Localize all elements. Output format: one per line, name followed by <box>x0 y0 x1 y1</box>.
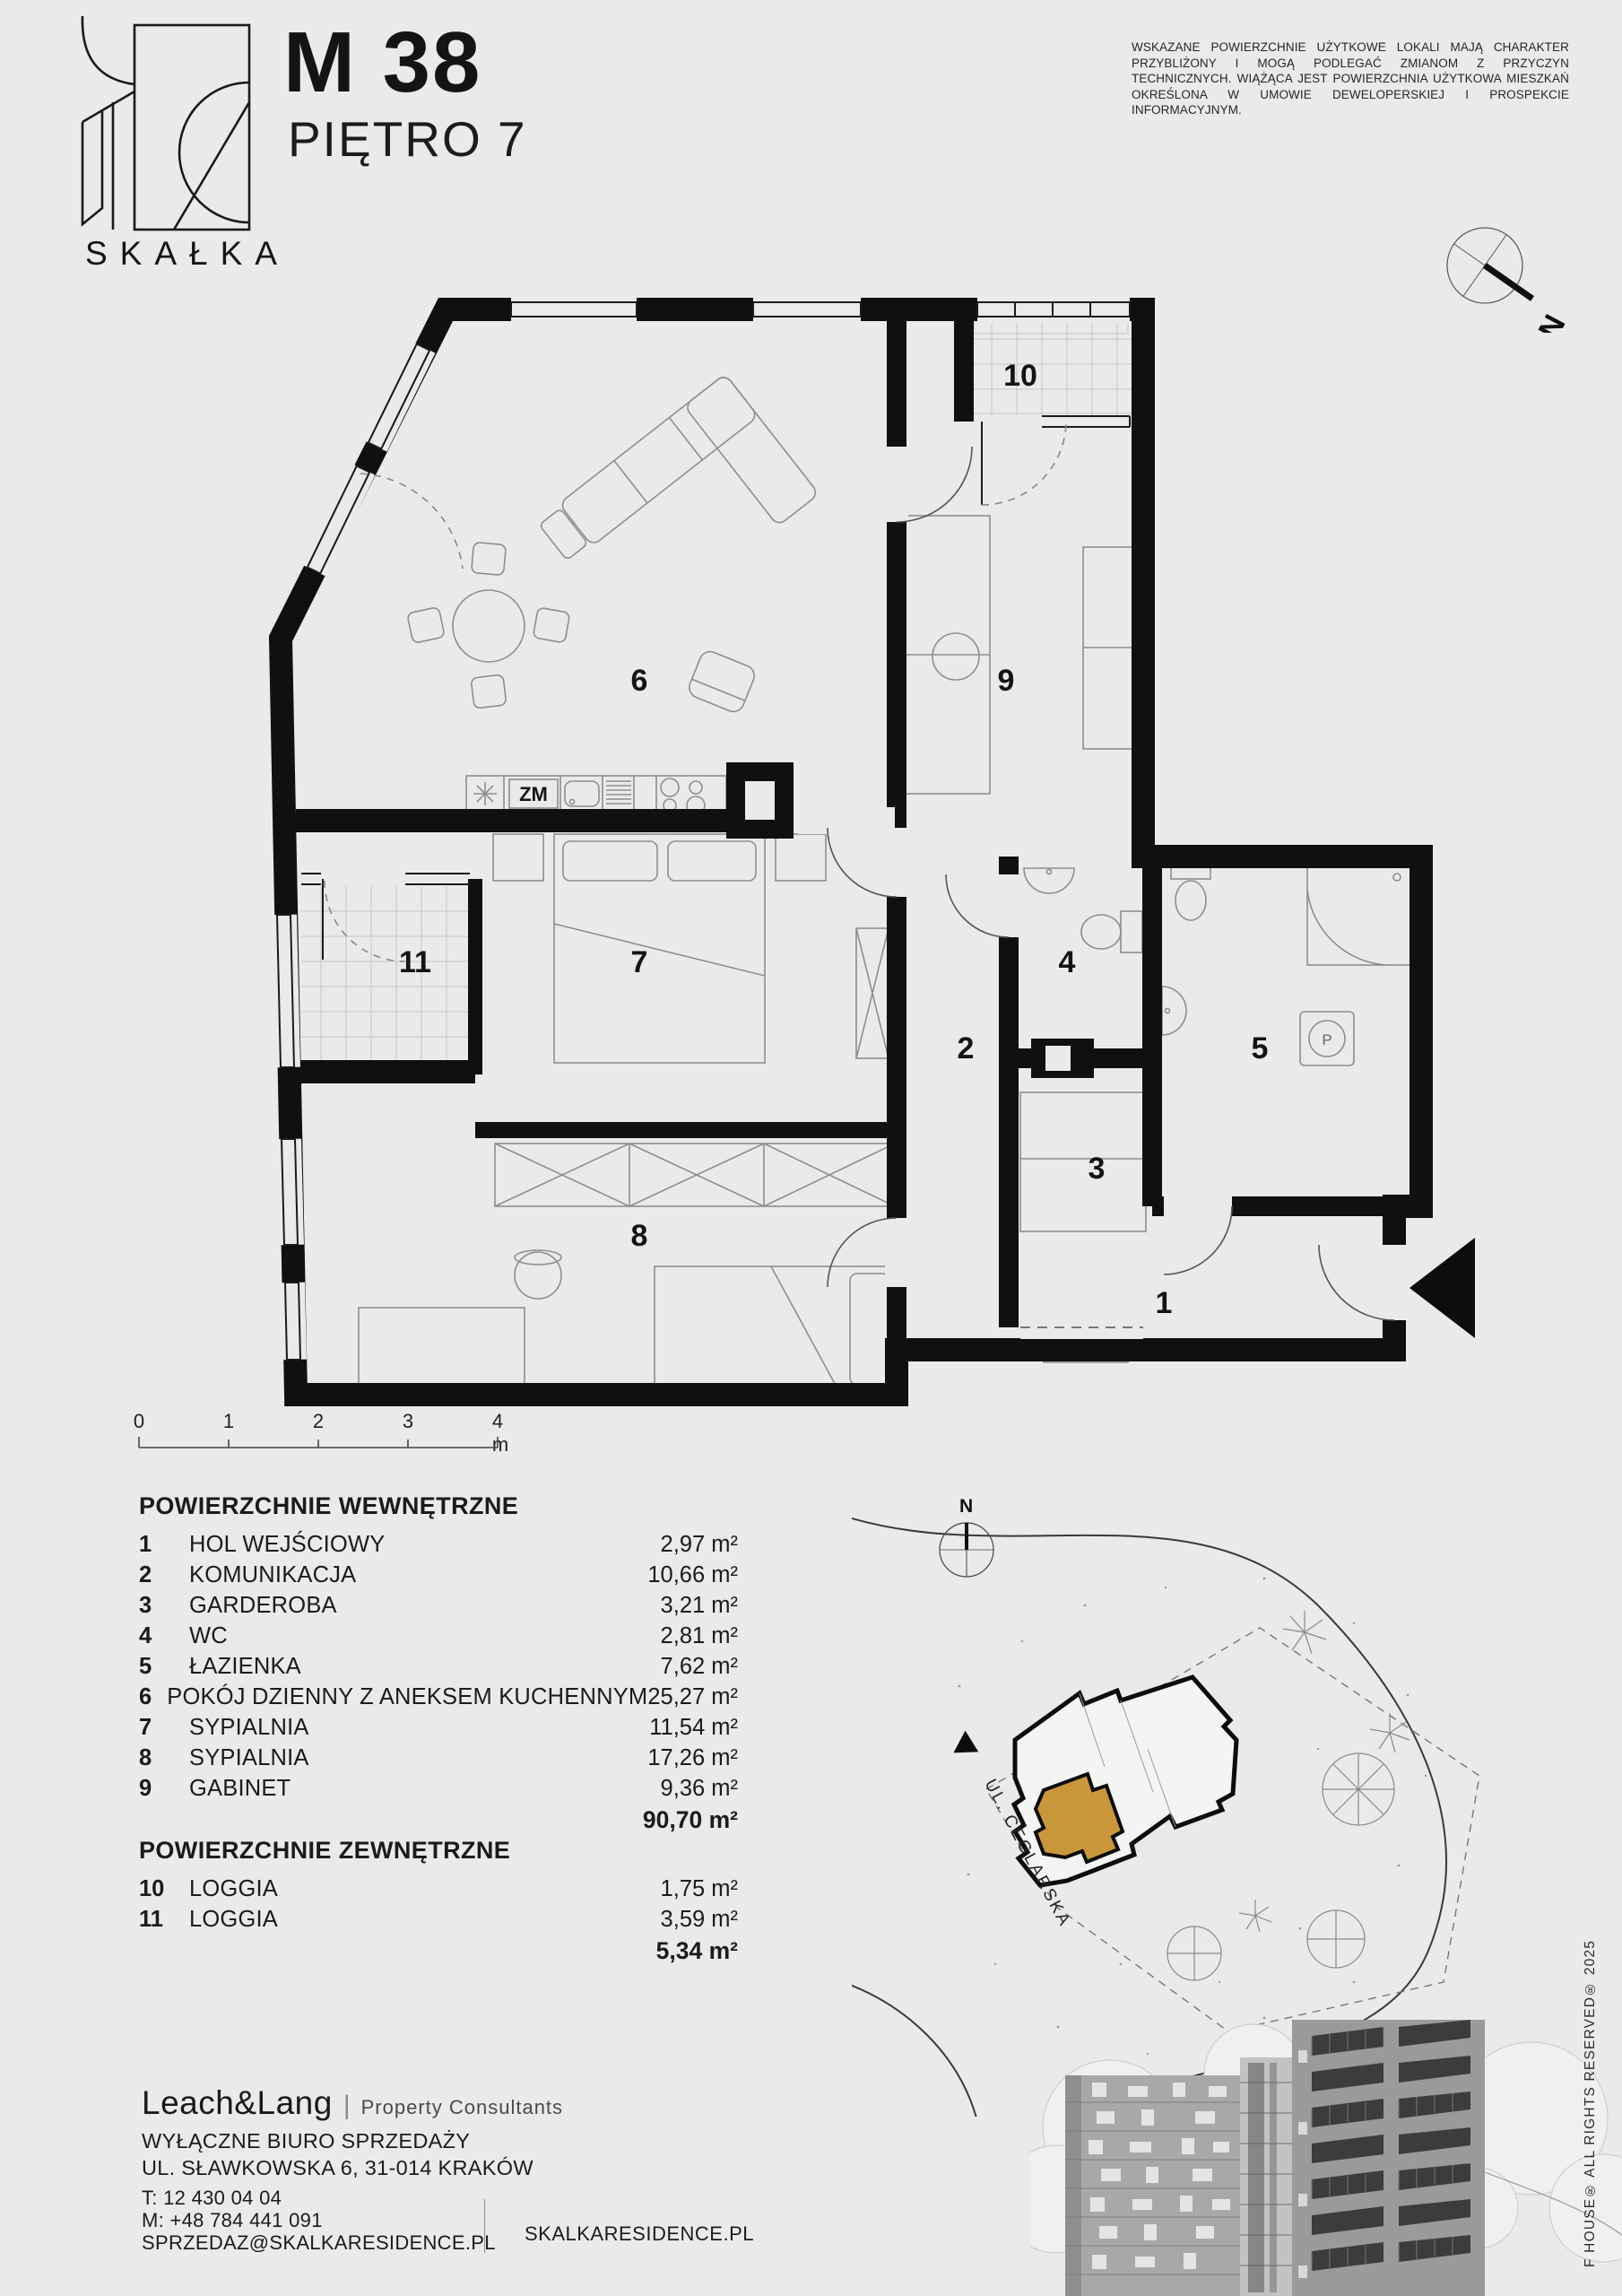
scale-tick-2: 2 <box>313 1410 324 1433</box>
entrance-arrow-icon <box>1409 1238 1475 1338</box>
room-label-6: 6 <box>631 664 648 698</box>
row-number: 10 <box>139 1876 189 1902</box>
row-area: 11,54 m² <box>649 1715 738 1741</box>
internal-areas-title: POWIERZCHNIE WEWNĘTRZNE <box>139 1492 738 1520</box>
table-row: 8 SYPIALNIA 17,26 m² <box>139 1743 738 1773</box>
row-area: 25,27 m² <box>647 1684 738 1710</box>
row-area: 3,21 m² <box>661 1593 738 1619</box>
row-area: 2,81 m² <box>661 1623 738 1649</box>
row-number: 2 <box>139 1562 189 1588</box>
table-row: 9 GABINET 9,36 m² <box>139 1773 738 1804</box>
skalka-logo-icon <box>56 16 298 240</box>
row-number: 5 <box>139 1654 189 1680</box>
agency-tagline: Property Consultants <box>361 2096 563 2119</box>
row-area: 3,59 m² <box>661 1907 738 1933</box>
contact-block: T: 12 430 04 04 M: +48 784 441 091 SPRZE… <box>142 2187 496 2254</box>
row-area: 1,75 m² <box>661 1876 738 1902</box>
email-address: SPRZEDAZ@SKALKARESIDENCE.PL <box>142 2231 496 2254</box>
row-label: LOGGIA <box>189 1907 661 1933</box>
brand-wordmark: SKAŁKA <box>85 235 290 273</box>
scale-bar: 0 1 2 3 4 m <box>134 1410 511 1451</box>
row-number: 3 <box>139 1593 189 1619</box>
sales-office-address: UL. SŁAWKOWSKA 6, 31-014 KRAKÓW <box>142 2154 533 2181</box>
row-area: 7,62 m² <box>661 1654 738 1680</box>
website-url: SKALKARESIDENCE.PL <box>525 2222 754 2246</box>
row-label: LOGGIA <box>189 1876 661 1902</box>
sales-office-line1: WYŁĄCZNE BIURO SPRZEDAŻY <box>142 2127 533 2154</box>
washer-p-label: P <box>1322 1031 1331 1048</box>
siteplan-north-label: N <box>959 1496 973 1517</box>
scale-tick-3: 3 <box>403 1410 413 1433</box>
room-label-11: 11 <box>399 945 431 979</box>
room-label-7: 7 <box>631 945 648 979</box>
table-row: 10 LOGGIA 1,75 m² <box>139 1874 738 1904</box>
table-row: 7 SYPIALNIA 11,54 m² <box>139 1712 738 1743</box>
room-label-9: 9 <box>998 664 1015 698</box>
scale-line <box>134 1435 511 1449</box>
external-areas-table: POWIERZCHNIE ZEWNĘTRZNE 10 LOGGIA 1,75 m… <box>139 1837 738 1965</box>
table-row: 1 HOL WEJŚCIOWY 2,97 m² <box>139 1529 738 1560</box>
room-label-8: 8 <box>631 1219 648 1253</box>
row-number: 4 <box>139 1623 189 1649</box>
row-label: GARDEROBA <box>189 1593 661 1619</box>
table-row: 6 POKÓJ DZIENNY Z ANEKSEM KUCHENNYM 25,2… <box>139 1682 738 1712</box>
row-number: 1 <box>139 1532 189 1558</box>
building-render <box>1029 2020 1622 2296</box>
render-building-middle <box>1240 2057 1292 2296</box>
page-title-unit: M 38 <box>283 20 481 106</box>
row-area: 17,26 m² <box>647 1745 738 1771</box>
sales-office-block: WYŁĄCZNE BIURO SPRZEDAŻY UL. SŁAWKOWSKA … <box>142 2127 533 2181</box>
room-label-4: 4 <box>1059 945 1076 979</box>
floor-plan: 1 2 3 4 5 6 7 8 9 10 11 ZM P <box>269 296 1479 1417</box>
rights-vertical-text: F HOUSE® ALL RIGHTS RESERVED® 2025 <box>1583 2043 1599 2267</box>
internal-areas-rows: 1 HOL WEJŚCIOWY 2,97 m² 2 KOMUNIKACJA 10… <box>139 1529 738 1804</box>
room-label-2: 2 <box>958 1031 975 1065</box>
table-row: 11 LOGGIA 3,59 m² <box>139 1904 738 1935</box>
table-row: 5 ŁAZIENKA 7,62 m² <box>139 1651 738 1682</box>
row-label: KOMUNIKACJA <box>189 1562 647 1588</box>
row-label: SYPIALNIA <box>189 1745 647 1771</box>
phone-landline: T: 12 430 04 04 <box>142 2187 496 2209</box>
door-arcs <box>828 447 1394 1320</box>
table-row: 2 KOMUNIKACJA 10,66 m² <box>139 1560 738 1590</box>
render-building-right <box>1292 2020 1485 2296</box>
room-label-5: 5 <box>1252 1031 1269 1065</box>
row-number: 6 <box>139 1684 167 1710</box>
internal-areas-total: 90,70 m² <box>139 1806 738 1834</box>
render-building-left <box>1065 2075 1240 2296</box>
internal-areas-table: POWIERZCHNIE WEWNĘTRZNE 1 HOL WEJŚCIOWY … <box>139 1492 738 1834</box>
row-area: 10,66 m² <box>647 1562 738 1588</box>
scale-tick-1: 1 <box>223 1410 234 1433</box>
agency-divider: | <box>343 2091 351 2121</box>
scale-tick-4: 4 m <box>492 1410 508 1457</box>
room-label-3: 3 <box>1089 1152 1106 1186</box>
loggia11-tiles <box>301 886 470 1065</box>
row-number: 11 <box>139 1907 189 1933</box>
kitchen-zm-label: ZM <box>519 783 548 805</box>
row-label: POKÓJ DZIENNY Z ANEKSEM KUCHENNYM <box>167 1684 647 1710</box>
row-label: SYPIALNIA <box>189 1715 649 1741</box>
street-direction-icon <box>953 1731 984 1763</box>
footer-divider <box>484 2199 485 2253</box>
row-area: 9,36 m² <box>661 1776 738 1802</box>
compass-north-label: N <box>1531 309 1571 333</box>
row-label: HOL WEJŚCIOWY <box>189 1532 661 1558</box>
row-number: 8 <box>139 1745 189 1771</box>
external-areas-title: POWIERZCHNIE ZEWNĘTRZNE <box>139 1837 738 1865</box>
row-area: 2,97 m² <box>661 1532 738 1558</box>
row-label: WC <box>189 1623 661 1649</box>
phone-mobile: M: +48 784 441 091 <box>142 2209 496 2231</box>
agency-name: Leach&Lang <box>142 2084 333 2122</box>
external-areas-total: 5,34 m² <box>139 1937 738 1965</box>
table-row: 4 WC 2,81 m² <box>139 1621 738 1651</box>
loggia10-tiles <box>970 314 1132 415</box>
row-label: GABINET <box>189 1776 661 1802</box>
brochure-page: SKAŁKA M 38 PIĘTRO 7 WSKAZANE POWIERZCHN… <box>0 0 1622 2296</box>
disclaimer-text: WSKAZANE POWIERZCHNIE UŻYTKOWE LOKALI MA… <box>1132 39 1569 118</box>
row-number: 7 <box>139 1715 189 1741</box>
room-label-1: 1 <box>1156 1286 1173 1320</box>
row-label: ŁAZIENKA <box>189 1654 661 1680</box>
agency-logo: Leach&Lang | Property Consultants <box>142 2084 563 2122</box>
scale-tick-0: 0 <box>134 1410 144 1433</box>
floor-subtitle: PIĘTRO 7 <box>288 115 527 164</box>
room-label-10: 10 <box>1003 359 1037 393</box>
row-number: 9 <box>139 1776 189 1802</box>
external-areas-rows: 10 LOGGIA 1,75 m² 11 LOGGIA 3,59 m² <box>139 1874 738 1935</box>
table-row: 3 GARDEROBA 3,21 m² <box>139 1590 738 1621</box>
